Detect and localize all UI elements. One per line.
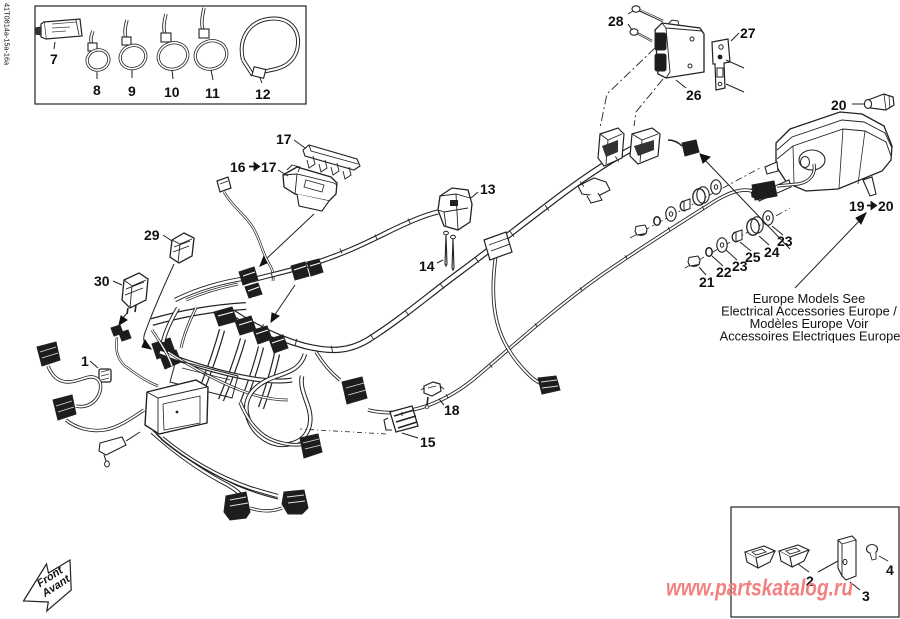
svg-text:30: 30 [94,273,110,289]
svg-text:18: 18 [444,402,460,418]
svg-text:25: 25 [745,249,761,265]
svg-text:10: 10 [164,84,180,100]
svg-text:13: 13 [480,181,496,197]
svg-text:1: 1 [81,353,89,369]
svg-text:9: 9 [128,83,136,99]
svg-text:14: 14 [419,258,435,274]
svg-text:23: 23 [777,233,793,249]
svg-text:15: 15 [420,434,436,450]
svg-text:11: 11 [205,85,220,101]
svg-text:Accessoires Electriques Europe: Accessoires Electriques Europe [720,329,900,344]
svg-text:26: 26 [686,87,702,103]
svg-text:28: 28 [608,13,624,29]
svg-text:17: 17 [276,131,292,147]
svg-text:3: 3 [862,588,870,604]
svg-text:4: 4 [886,562,894,578]
svg-text:21: 21 [699,274,715,290]
svg-text:17: 17 [261,159,277,175]
svg-text:19: 19 [849,198,865,214]
svg-text:8: 8 [93,82,101,98]
svg-text:16: 16 [230,159,246,175]
svg-text:www.partskatalog.ru: www.partskatalog.ru [666,575,853,601]
svg-text:22: 22 [716,264,732,280]
svg-text:12: 12 [255,86,271,102]
svg-text:20: 20 [831,97,847,113]
svg-text:29: 29 [144,227,160,243]
svg-text:7: 7 [50,51,58,67]
svg-text:27: 27 [740,25,756,41]
svg-text:41T0814a-15a-16a: 41T0814a-15a-16a [3,3,12,66]
svg-text:20: 20 [878,198,894,214]
